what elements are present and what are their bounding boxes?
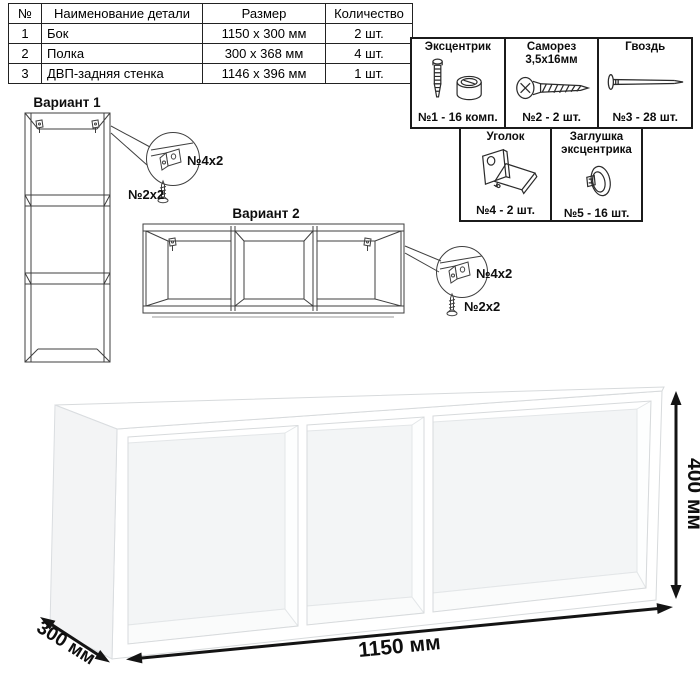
height-dimension-label: 400 мм xyxy=(683,458,700,530)
variant2-drawing: Вариант 2 xyxy=(143,206,441,317)
bracket-mark-icon xyxy=(36,120,43,133)
variant2-screw-label: №2х2 xyxy=(464,299,500,314)
callout-leader xyxy=(111,126,150,165)
variant1-drawing: Вариант 1 xyxy=(25,95,150,362)
variant1-label: Вариант 1 xyxy=(33,95,101,110)
variant2-label: Вариант 2 xyxy=(232,206,299,221)
callout-leader xyxy=(405,246,441,272)
variant1-bracket-label: №4х2 xyxy=(187,153,223,168)
assembly-instruction-sheet: № Наименование детали Размер Количество … xyxy=(0,0,700,690)
variant2-bracket-label: №4х2 xyxy=(476,266,512,281)
bracket-mark-icon xyxy=(364,238,371,251)
assembly-diagram: Вариант 1 №4х2 №2х2 Вариант 2 xyxy=(0,0,700,690)
dimension-height: 400 мм xyxy=(671,391,700,599)
bracket-mark-icon xyxy=(92,120,99,133)
variant2-callout: №4х2 №2х2 xyxy=(437,247,513,316)
shelf-left-face xyxy=(50,405,117,659)
bracket-mark-icon xyxy=(169,238,176,251)
variant1-screw-label: №2х2 xyxy=(128,187,164,202)
screw-icon xyxy=(447,294,457,316)
